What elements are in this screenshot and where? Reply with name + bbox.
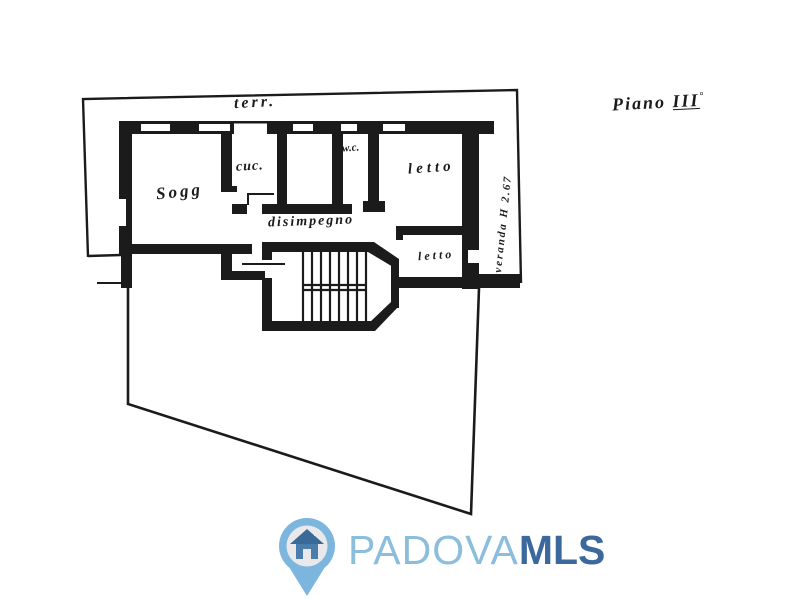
room-label-terrace: terr. [234,93,277,113]
room-label-wc: w.c. [342,141,360,154]
staircase [262,242,399,331]
room-label-bedroom-top: letto [407,158,455,178]
room-label-kitchen: cuc. [236,158,265,175]
apartment-walls [119,121,520,289]
padovamls-logo: PADOVAMLS [276,512,605,600]
floor-number-degree: ° [699,91,706,102]
floor-plan-page: terr. Sogg cuc. w.c. letto disimpegno le… [0,0,800,600]
room-label-hallway: disimpegno [268,213,355,232]
room-label-bedroom-bottom: letto [418,247,455,264]
floor-number-prefix: Piano [612,92,667,115]
brand-wordmark: PADOVAMLS [348,530,605,571]
brand-mls-text: MLS [519,530,606,571]
brand-padova-text: PADOVA [348,530,519,571]
floor-number-numeral: III [672,90,700,111]
map-pin-house-icon [276,516,338,598]
